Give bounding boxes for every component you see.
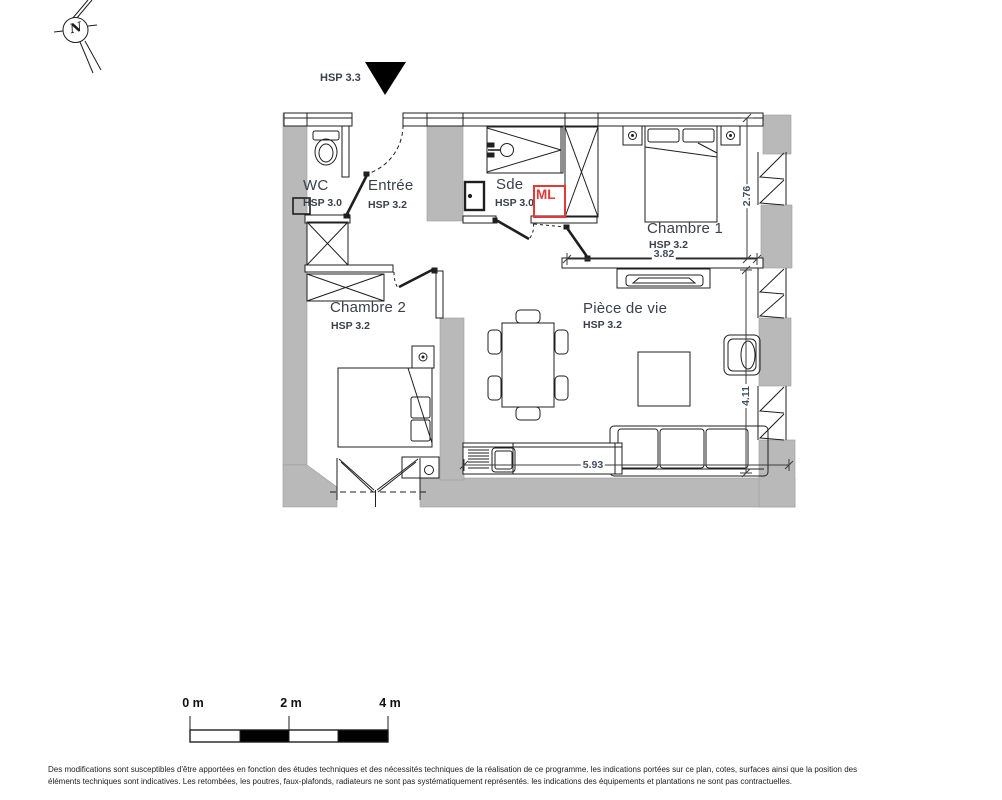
chambre2-wardrobe-icon (307, 274, 384, 301)
toilet-icon (313, 131, 339, 165)
sde-closet-icon (565, 127, 598, 217)
dimension-living-width: 5.93 (581, 459, 605, 471)
floor-plan-drawing (0, 0, 1002, 800)
chambre2-door-icon (394, 268, 437, 288)
disclaimer-line-1: Des modifications sont susceptibles d'êt… (48, 764, 857, 776)
window-living-bottom-icon (758, 386, 786, 440)
room-label-sde: Sde (496, 176, 523, 193)
hsp-label-piece-de-vie: HSP 3.2 (583, 319, 622, 331)
wc-door-icon (344, 172, 369, 218)
room-label-chambre2: Chambre 2 (330, 299, 406, 316)
dimension-chambre1-width: 3.82 (652, 248, 676, 260)
entrance-door-icon (363, 125, 403, 175)
chambre1-door-icon (534, 224, 590, 261)
chambre1-bed-icon (645, 126, 717, 222)
washing-machine-label: ML (536, 187, 556, 202)
french-window-chambre2-icon (330, 458, 427, 507)
floor-plan-page: N HSP 3.3 WC HSP 3.0 Entrée HSP 3.2 Sde … (0, 0, 1002, 800)
sofa-icon (610, 426, 768, 476)
hsp-label-entree: HSP 3.2 (368, 199, 407, 211)
top-wall (284, 113, 763, 126)
shower-icon (487, 127, 563, 173)
room-label-piece-de-vie: Pièce de vie (583, 300, 667, 317)
scale-bar (190, 716, 388, 742)
dimension-living-height: 4.11 (740, 384, 752, 408)
window-chambre1-icon (758, 152, 786, 205)
entrance-marker-icon (365, 62, 406, 95)
disclaimer-text: Des modifications sont susceptibles d'êt… (48, 764, 857, 789)
chambre2-bed-icon (338, 368, 432, 447)
chambre1-nightstand-left-icon (623, 126, 642, 145)
hsp-label-wc: HSP 3.0 (303, 197, 342, 209)
sde-washbasin-icon (465, 182, 484, 210)
scale-label-0m: 0 m (182, 696, 204, 710)
room-label-wc: WC (303, 177, 328, 194)
tv-console-icon (617, 269, 710, 288)
washing-machine-box: ML (533, 185, 566, 218)
chambre1-nightstand-right-icon (721, 126, 740, 145)
north-arrow-icon (54, 0, 101, 73)
entrance-hsp-label: HSP 3.3 (320, 72, 361, 84)
scale-label-2m: 2 m (280, 696, 302, 710)
dining-table-icon (488, 310, 568, 420)
dimension-lines (460, 114, 793, 477)
disclaimer-line-2: éléments techniques sont indicatives. Le… (48, 776, 857, 788)
hsp-label-chambre2: HSP 3.2 (331, 320, 370, 332)
room-label-entree: Entrée (368, 177, 413, 194)
sde-door-icon (493, 218, 534, 239)
armchair-icon (724, 335, 760, 375)
entree-closet-icon (307, 222, 348, 265)
room-label-chambre1: Chambre 1 (647, 220, 723, 237)
window-living-top-icon (758, 268, 786, 318)
rug-icon (638, 352, 690, 406)
dimension-chambre1-height: 2.76 (741, 184, 753, 208)
chambre2-nightstand-icon (412, 346, 434, 368)
hsp-label-sde: HSP 3.0 (495, 197, 534, 209)
scale-label-4m: 4 m (379, 696, 401, 710)
